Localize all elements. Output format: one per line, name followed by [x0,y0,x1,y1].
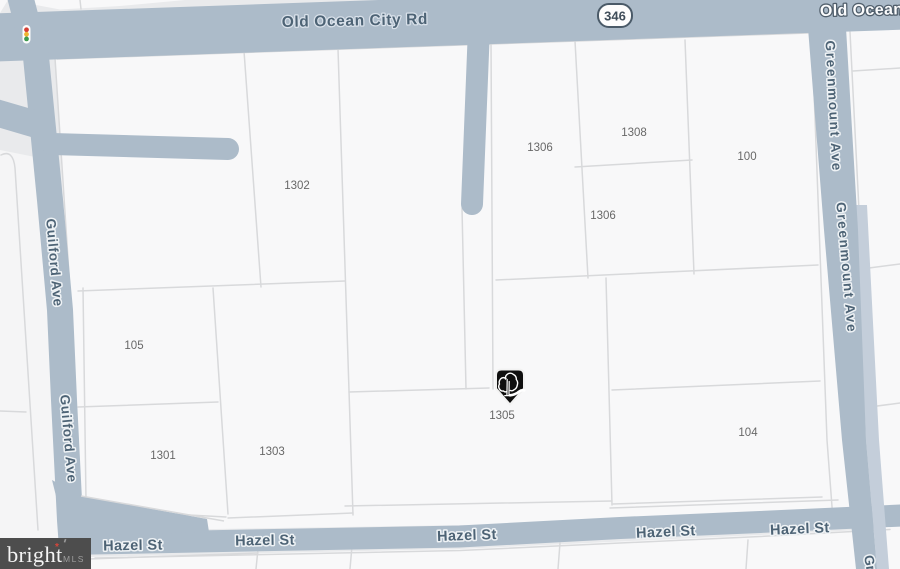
svg-text:Old Ocean City Rd: Old Ocean City Rd [282,11,429,31]
svg-text:Old Ocean: Old Ocean [820,1,900,20]
svg-text:Hazel St: Hazel St [770,520,830,539]
svg-text:1306: 1306 [590,210,616,222]
svg-text:1303: 1303 [259,446,285,458]
svg-text:1302: 1302 [284,180,310,192]
svg-text:Hazel St: Hazel St [437,527,497,545]
svg-text:1306: 1306 [527,142,553,154]
svg-text:1308: 1308 [621,127,647,139]
svg-text:105: 105 [124,340,143,352]
svg-text:346: 346 [604,9,626,24]
svg-text:MLS: MLS [63,554,85,564]
svg-text:100: 100 [737,151,756,163]
svg-text:104: 104 [738,427,758,439]
svg-text:Hazel St: Hazel St [636,523,696,542]
svg-text:Hazel St: Hazel St [103,537,163,554]
svg-text:1305: 1305 [489,410,515,422]
svg-text:Hazel St: Hazel St [235,532,295,549]
svg-text:*: * [55,542,59,553]
svg-text:1301: 1301 [150,450,176,462]
